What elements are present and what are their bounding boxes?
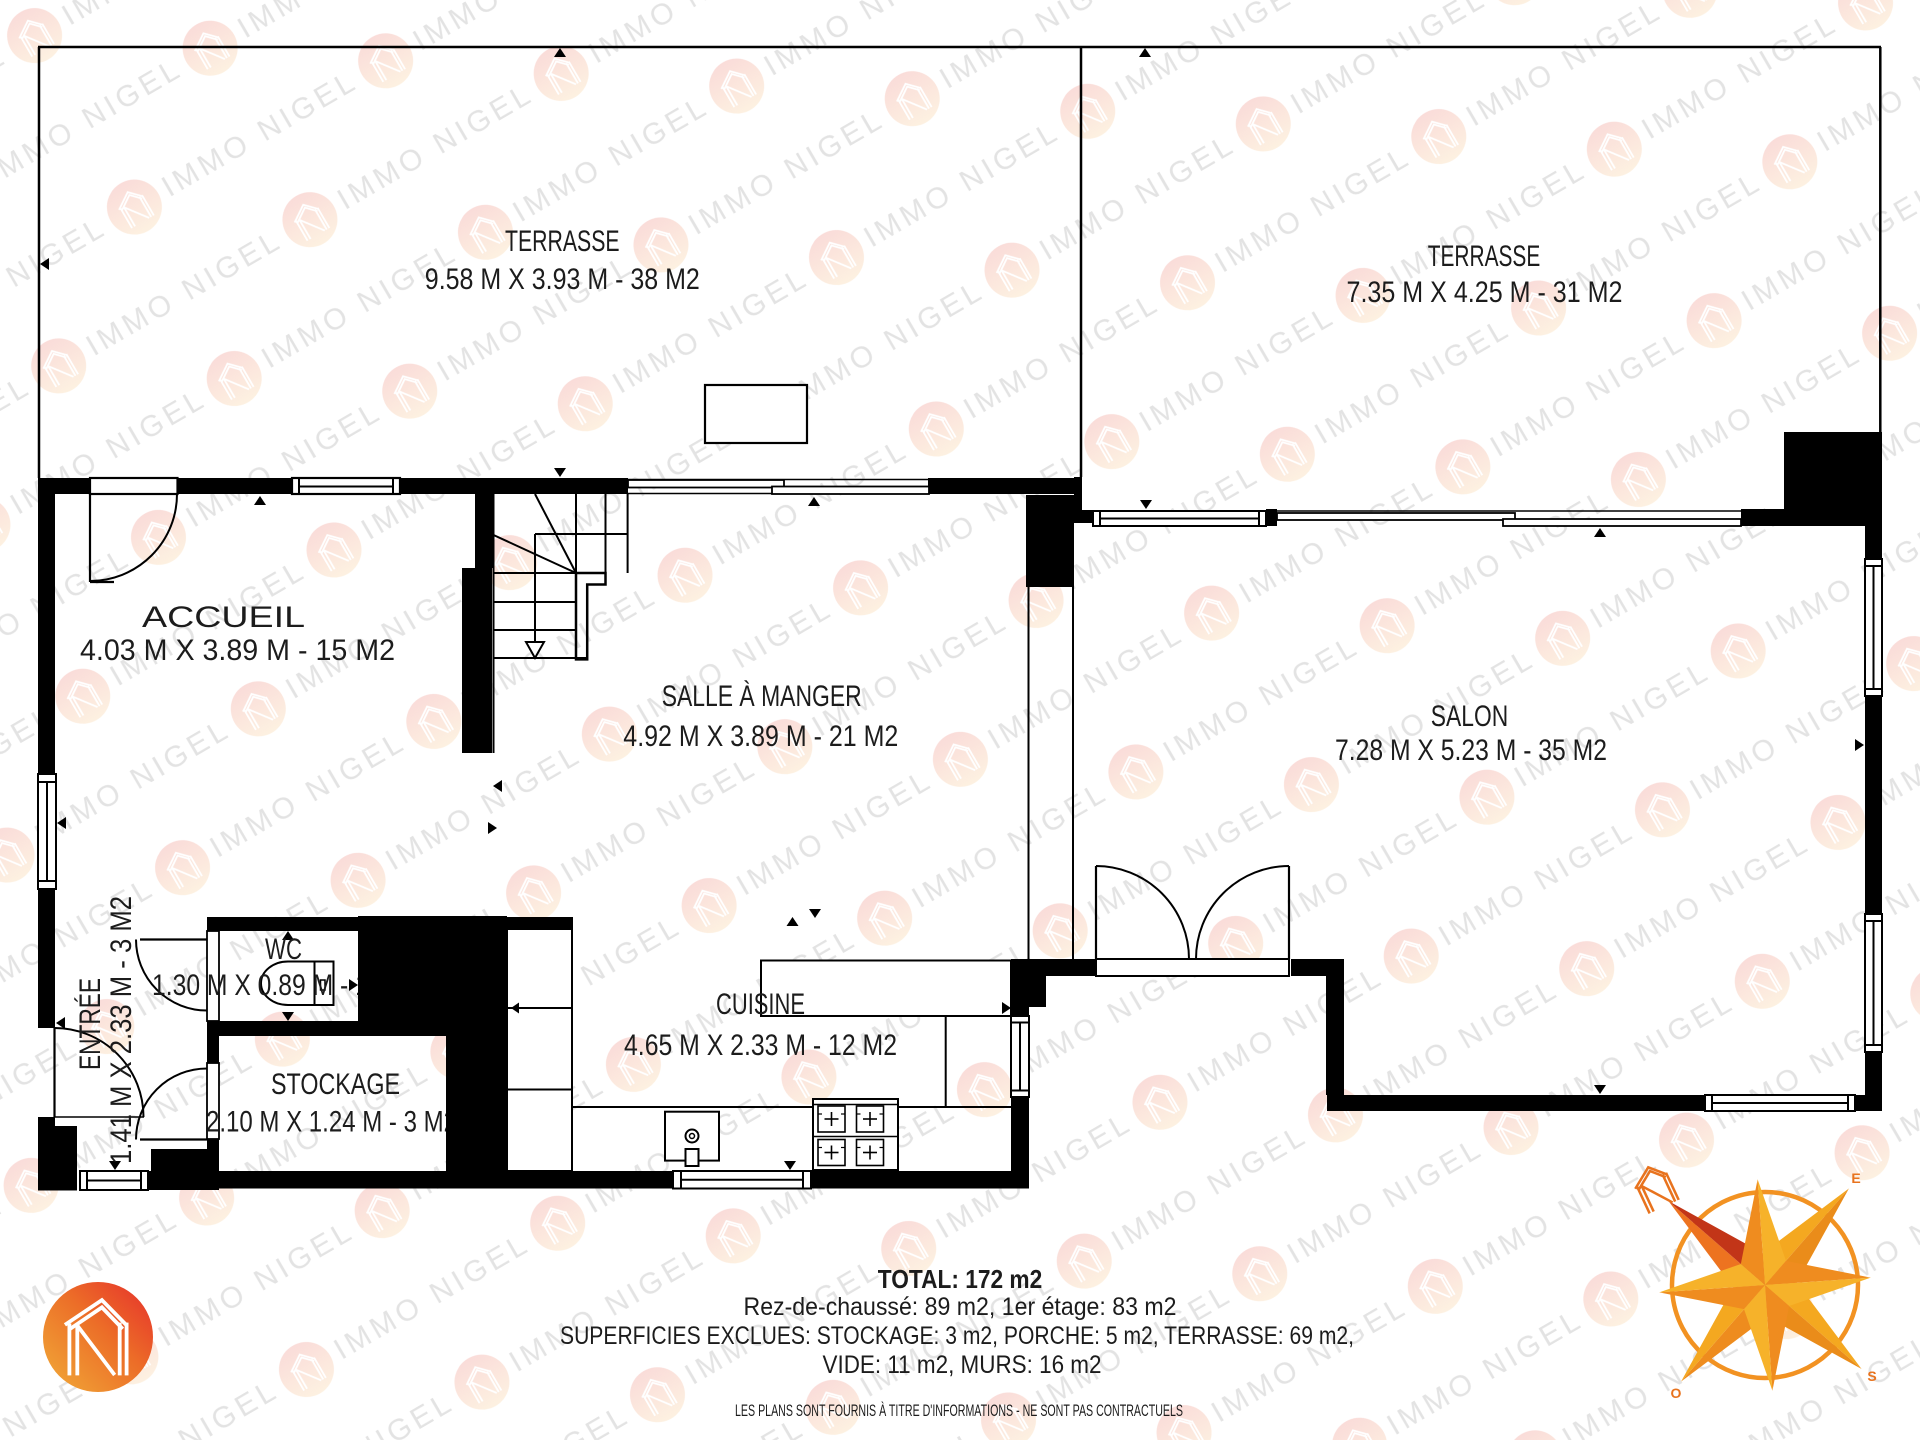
- svg-text:SUPERFICIES EXCLUES: STOCKAGE:: SUPERFICIES EXCLUES: STOCKAGE: 3 m2, POR…: [560, 1322, 1354, 1350]
- svg-text:SALLE À MANGER: SALLE À MANGER: [662, 680, 862, 713]
- svg-text:LES PLANS SONT FOURNIS À TITRE: LES PLANS SONT FOURNIS À TITRE D'INFORMA…: [735, 1401, 1183, 1420]
- svg-text:4.92 M X 3.89 M - 21 M2: 4.92 M X 3.89 M - 21 M2: [623, 720, 898, 753]
- svg-text:7.35 M X 4.25 M - 31 M2: 7.35 M X 4.25 M - 31 M2: [1347, 276, 1623, 309]
- svg-text:CUISINE: CUISINE: [716, 988, 805, 1021]
- svg-text:ENTRÉE: ENTRÉE: [74, 978, 107, 1070]
- svg-text:ACCUEIL: ACCUEIL: [142, 601, 305, 634]
- svg-text:TERRASSE: TERRASSE: [505, 225, 620, 258]
- svg-text:O: O: [1671, 1385, 1682, 1401]
- svg-text:4.65 M X 2.33 M - 12 M2: 4.65 M X 2.33 M - 12 M2: [624, 1029, 897, 1062]
- svg-text:E: E: [1851, 1170, 1860, 1186]
- svg-text:TOTAL: 172 m2: TOTAL: 172 m2: [878, 1264, 1043, 1294]
- svg-text:Rez-de-chaussé: 89 m2, 1er éta: Rez-de-chaussé: 89 m2, 1er étage: 83 m2: [744, 1293, 1177, 1321]
- svg-text:WC: WC: [265, 933, 302, 966]
- svg-text:TERRASSE: TERRASSE: [1428, 240, 1541, 273]
- svg-text:2.10 M X 1.24 M - 3 M2: 2.10 M X 1.24 M - 3 M2: [206, 1106, 457, 1139]
- svg-text:4.03 M X 3.89 M - 15 M2: 4.03 M X 3.89 M - 15 M2: [80, 634, 395, 667]
- svg-text:1.41 M X 2.33 M - 3 M2: 1.41 M X 2.33 M - 3 M2: [105, 896, 138, 1164]
- svg-text:S: S: [1867, 1368, 1876, 1384]
- svg-text:7.28 M X 5.23 M - 35 M2: 7.28 M X 5.23 M - 35 M2: [1335, 734, 1607, 767]
- svg-text:STOCKAGE: STOCKAGE: [271, 1068, 400, 1101]
- svg-text:9.58 M X 3.93 M - 38 M2: 9.58 M X 3.93 M - 38 M2: [425, 263, 700, 296]
- svg-text:VIDE: 11 m2, MURS: 16 m2: VIDE: 11 m2, MURS: 16 m2: [823, 1351, 1102, 1379]
- svg-text:SALON: SALON: [1431, 700, 1508, 733]
